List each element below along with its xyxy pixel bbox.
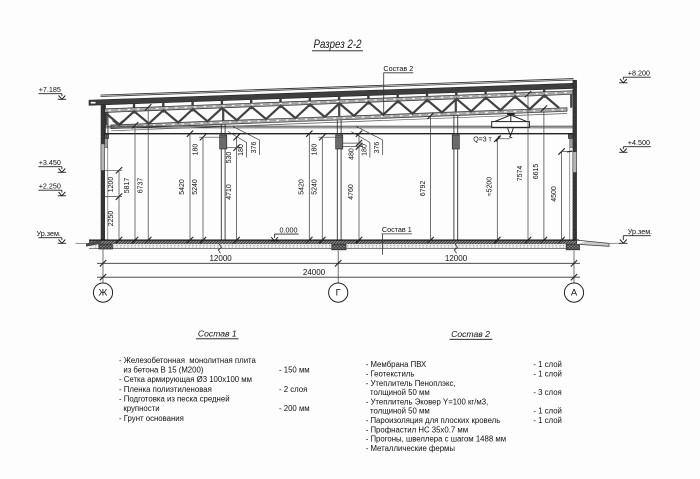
svg-text:376: 376 — [251, 142, 258, 154]
svg-text:180: 180 — [238, 144, 245, 156]
svg-text:- Утеплитель Эковер Y=100 кг/м: - Утеплитель Эковер Y=100 кг/м3, — [366, 397, 489, 406]
svg-text:Состав 2: Состав 2 — [451, 329, 490, 339]
svg-text:толщиной 50 мм: толщиной 50 мм — [366, 407, 430, 416]
svg-text:+7.185: +7.185 — [39, 85, 61, 94]
svg-text:12000: 12000 — [445, 254, 468, 263]
svg-text:4760: 4760 — [348, 184, 355, 200]
svg-text:из бетона В 15 (М200): из бетона В 15 (М200) — [119, 366, 204, 375]
svg-text:0.000: 0.000 — [280, 225, 298, 234]
svg-text:крупности: крупности — [119, 404, 160, 413]
svg-text:+2.250: +2.250 — [39, 182, 61, 191]
svg-text:5817: 5817 — [124, 178, 131, 194]
svg-text:5240: 5240 — [312, 179, 319, 195]
svg-text:А: А — [571, 287, 578, 298]
svg-text:24000: 24000 — [303, 268, 326, 277]
svg-text:- 200 мм: - 200 мм — [279, 404, 310, 413]
svg-text:12000: 12000 — [209, 254, 232, 263]
svg-text:6737: 6737 — [137, 178, 144, 194]
svg-text:Состав 2: Состав 2 — [383, 64, 413, 73]
svg-text:- Утеплитель Пеноплэкс,: - Утеплитель Пеноплэкс, — [366, 379, 456, 388]
svg-text:5420: 5420 — [179, 179, 186, 195]
svg-text:+8.200: +8.200 — [628, 69, 650, 78]
svg-text:2250: 2250 — [108, 211, 115, 227]
svg-text:- Металлические фермы: - Металлические фермы — [366, 444, 456, 453]
svg-text:180: 180 — [192, 144, 199, 156]
svg-text:Ур.зем.: Ур.зем. — [628, 227, 652, 236]
svg-text:Г: Г — [336, 287, 341, 298]
svg-text:4710: 4710 — [226, 184, 233, 200]
svg-text:4500: 4500 — [551, 186, 558, 202]
svg-text:530: 530 — [226, 152, 233, 164]
svg-text:- 1 слой: - 1 слой — [533, 407, 562, 416]
svg-text:- Мембрана ПВХ: - Мембрана ПВХ — [366, 360, 427, 369]
svg-text:5240: 5240 — [192, 179, 199, 195]
svg-text:Состав 1: Состав 1 — [382, 225, 412, 234]
svg-text:Ж: Ж — [99, 287, 108, 298]
svg-text:Состав 1: Состав 1 — [198, 328, 237, 338]
svg-text:6792: 6792 — [420, 181, 427, 197]
svg-text:1200: 1200 — [108, 177, 115, 193]
svg-text:- Пленка полиэтиленовая: - Пленка полиэтиленовая — [119, 385, 212, 394]
svg-text:5420: 5420 — [299, 179, 306, 195]
svg-text:- Прогоны, швеллера с шагом 14: - Прогоны, швеллера с шагом 1488 мм — [366, 435, 506, 444]
svg-text:+4.500: +4.500 — [628, 138, 650, 147]
svg-text:- Сетка армирующая Ø3 100х100: - Сетка армирующая Ø3 100х100 мм — [119, 375, 252, 384]
svg-text:- 1 слой: - 1 слой — [533, 416, 562, 425]
svg-text:- Геотекстиль: - Геотекстиль — [366, 370, 415, 379]
svg-text:- Пароизоляция для плоских кро: - Пароизоляция для плоских кровель — [366, 416, 501, 425]
svg-text:376: 376 — [374, 142, 381, 154]
svg-text:- 150 мм: - 150 мм — [279, 366, 310, 375]
svg-text:7574: 7574 — [517, 166, 524, 182]
svg-text:- Железобетонная монолитная п: - Железобетонная монолитная плита — [119, 356, 257, 365]
svg-text:480: 480 — [348, 148, 355, 160]
svg-text:180: 180 — [312, 144, 319, 156]
svg-text:- 1 слой: - 1 слой — [533, 360, 562, 369]
svg-text:Q=3 т: Q=3 т — [473, 137, 492, 144]
svg-text:- Подготовка из песка средней: - Подготовка из песка средней — [119, 395, 230, 404]
svg-text:- 3 слоя: - 3 слоя — [533, 388, 561, 397]
svg-text:≈5200: ≈5200 — [487, 177, 494, 197]
svg-text:+3.450: +3.450 — [39, 158, 61, 167]
svg-text:- 1 слой: - 1 слой — [533, 370, 562, 379]
svg-text:6615: 6615 — [533, 164, 540, 180]
svg-text:толщиной 50 мм: толщиной 50 мм — [366, 388, 430, 397]
svg-text:Ур.зем.: Ур.зем. — [37, 229, 61, 238]
svg-text:Разрез 2-2: Разрез 2-2 — [314, 37, 362, 51]
svg-text:- Грунт основания: - Грунт основания — [119, 414, 184, 423]
svg-text:- 2 слоя: - 2 слоя — [279, 385, 307, 394]
svg-text:180: 180 — [361, 144, 368, 156]
svg-text:- Профнастил НС 35х0.7 мм: - Профнастил НС 35х0.7 мм — [366, 425, 468, 434]
